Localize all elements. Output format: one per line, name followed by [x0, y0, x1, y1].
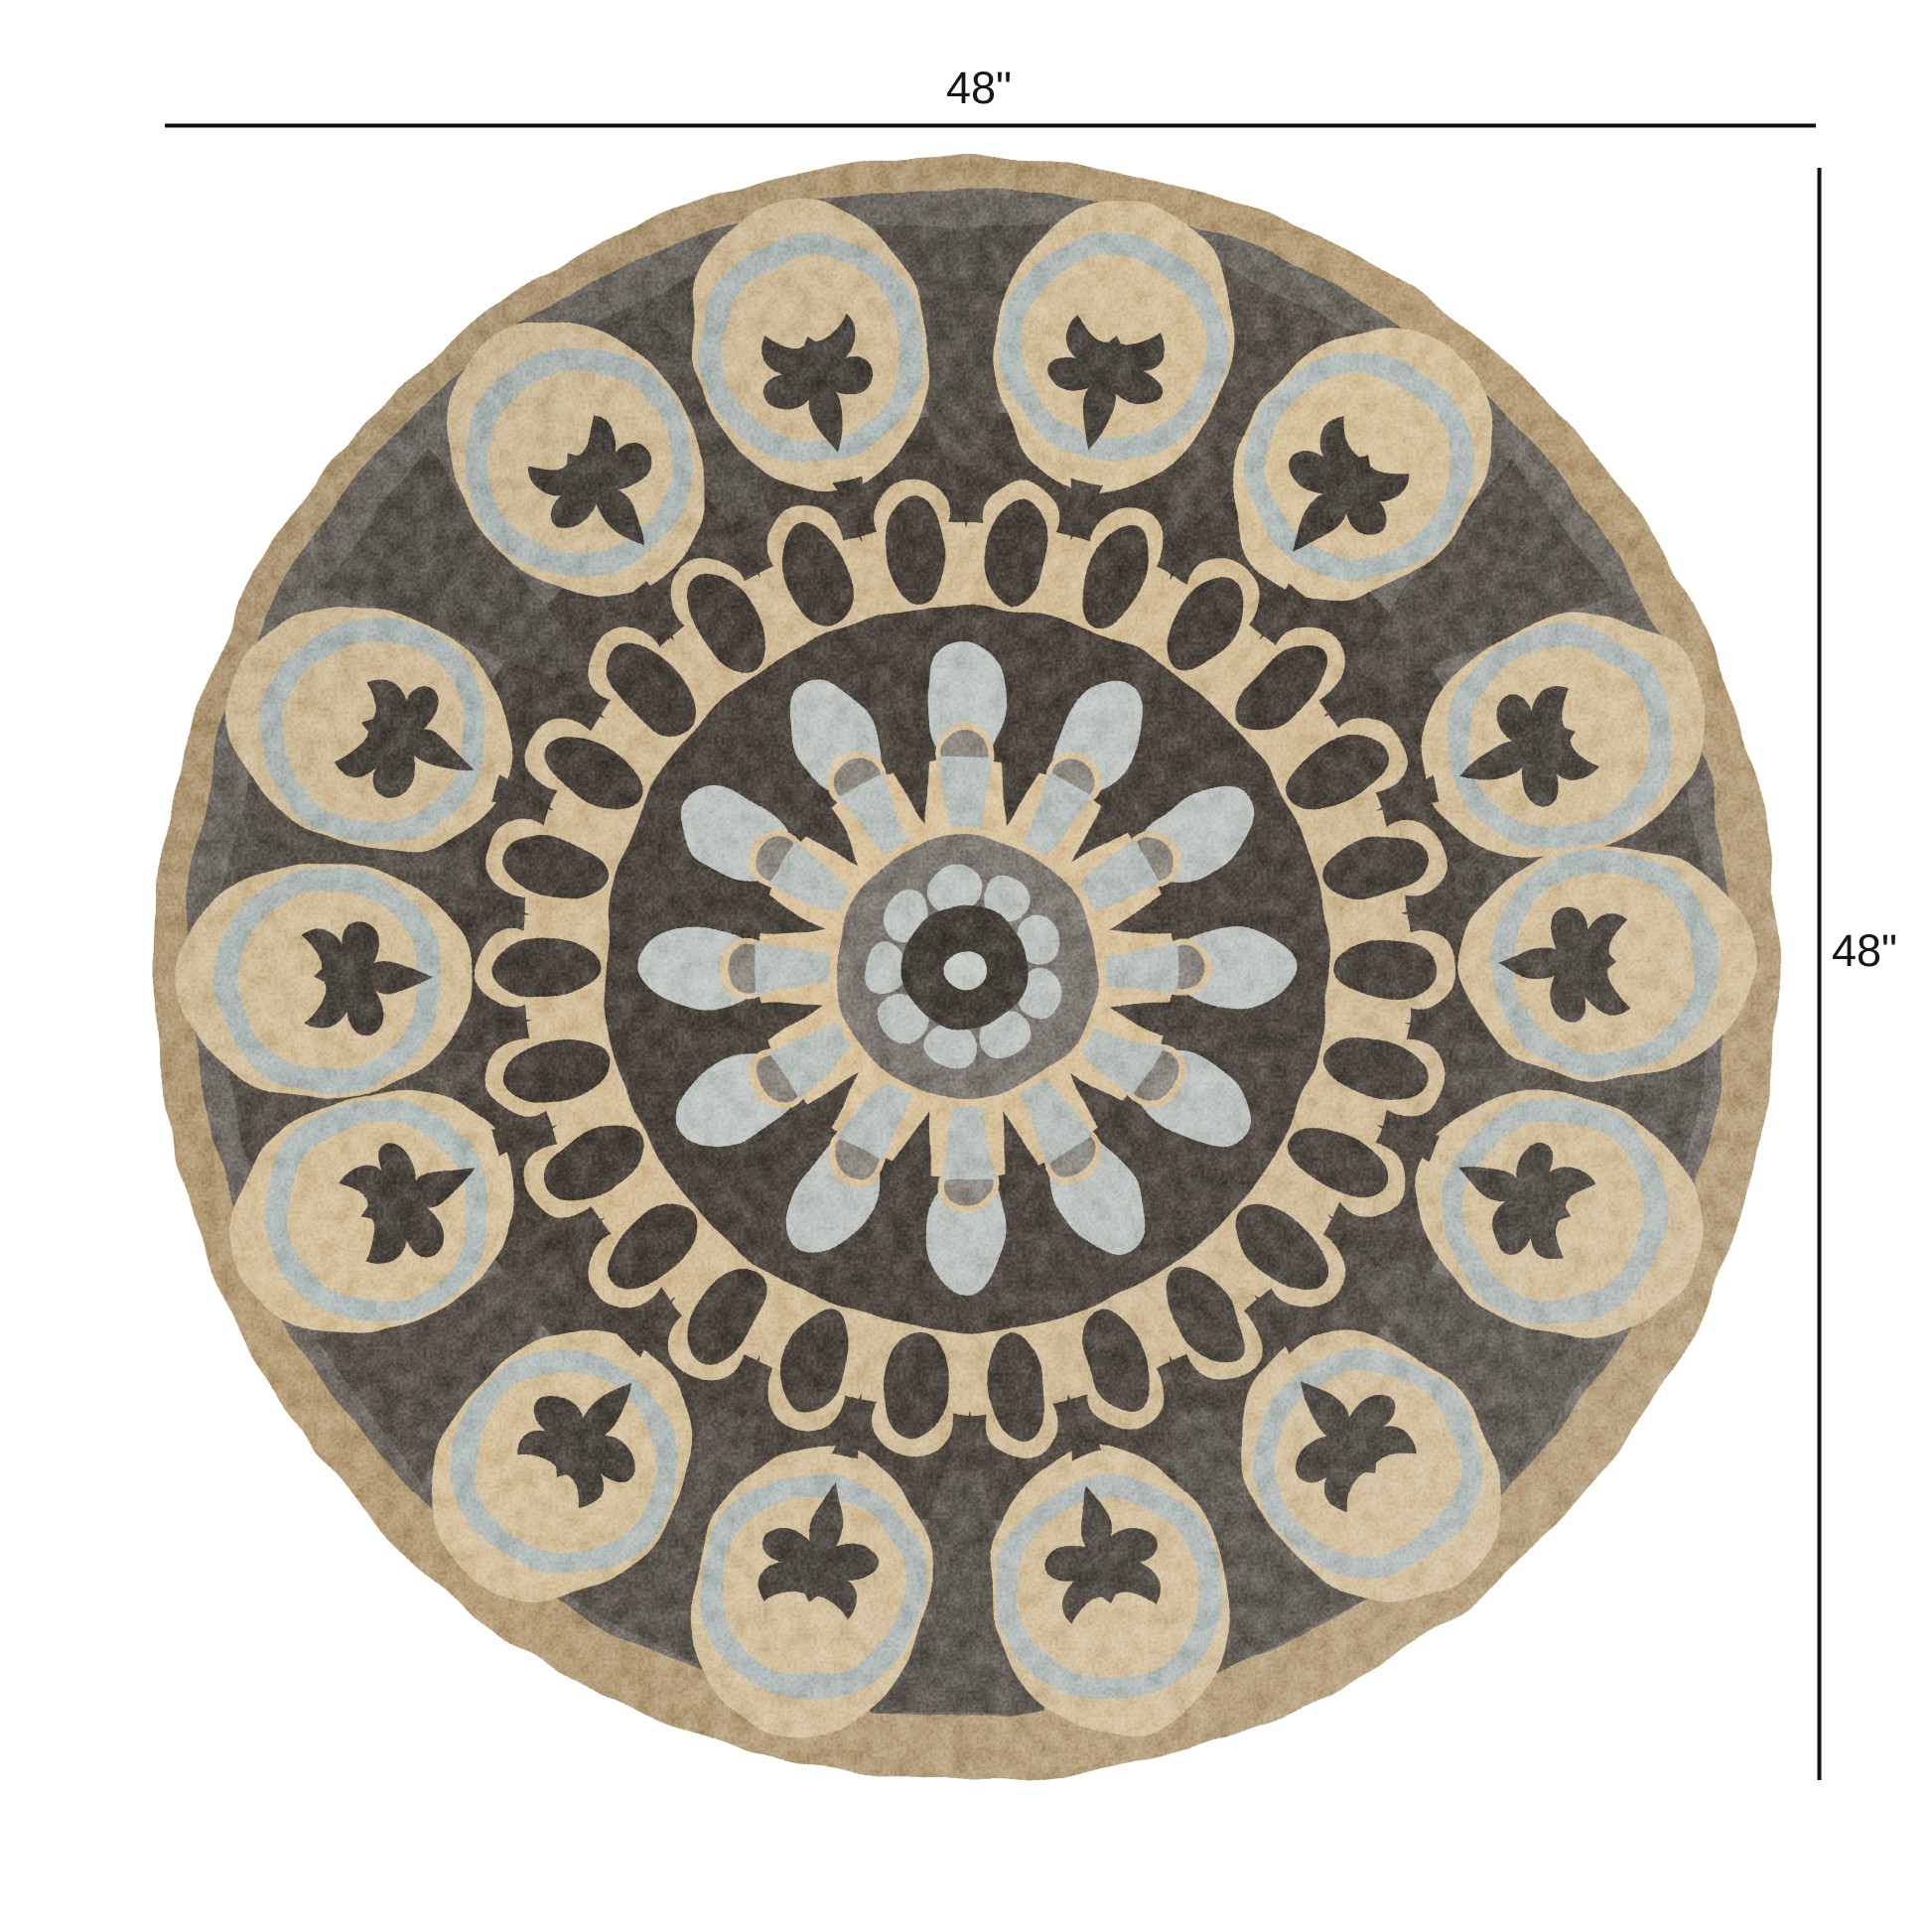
- svg-text:48": 48": [1832, 925, 1897, 976]
- svg-text:48": 48": [946, 63, 1012, 113]
